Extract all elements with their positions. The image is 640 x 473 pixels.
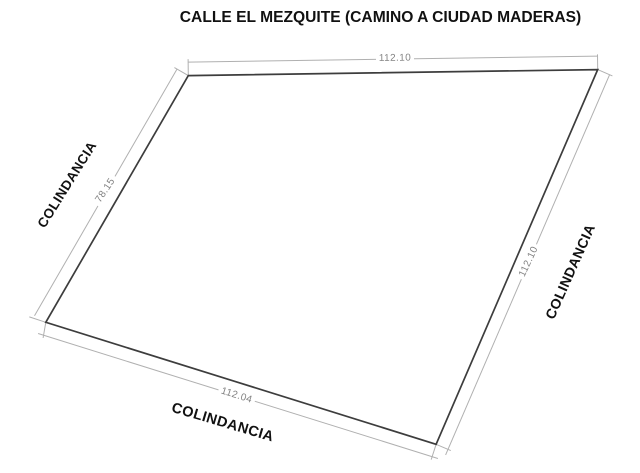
svg-text:112.10: 112.10 [379,53,411,64]
svg-text:CALLE EL MEZQUITE (CAMINO A CI: CALLE EL MEZQUITE (CAMINO A CIUDAD MADER… [180,9,581,26]
svg-text:COLINDANCIA: COLINDANCIA [170,400,276,445]
svg-text:COLINDANCIA: COLINDANCIA [34,139,99,231]
svg-text:COLINDANCIA: COLINDANCIA [542,221,598,321]
svg-text:112.04: 112.04 [220,386,254,406]
